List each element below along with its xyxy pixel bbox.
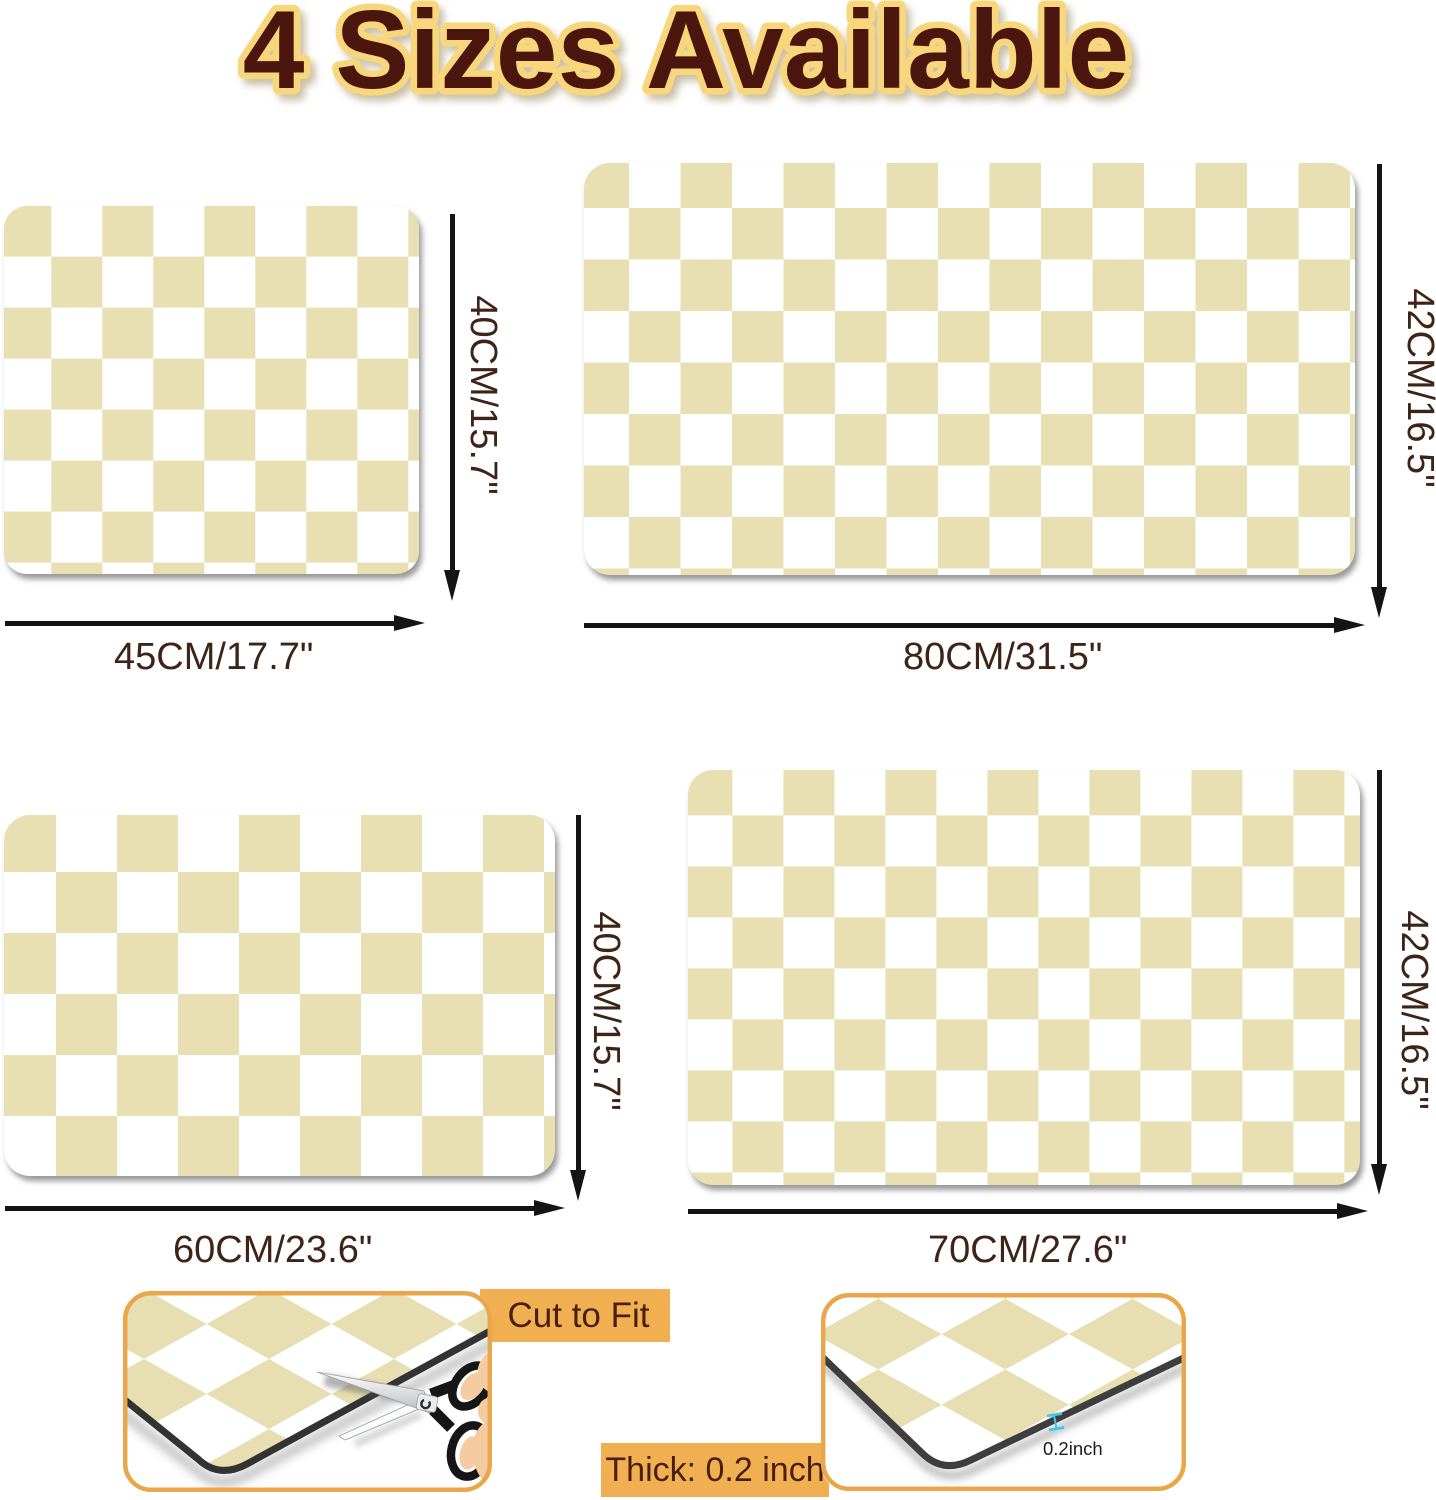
svg-text:0.2inch: 0.2inch: [1043, 1438, 1103, 1459]
svg-text:4 Sizes Available: 4 Sizes Available: [243, 0, 1129, 112]
